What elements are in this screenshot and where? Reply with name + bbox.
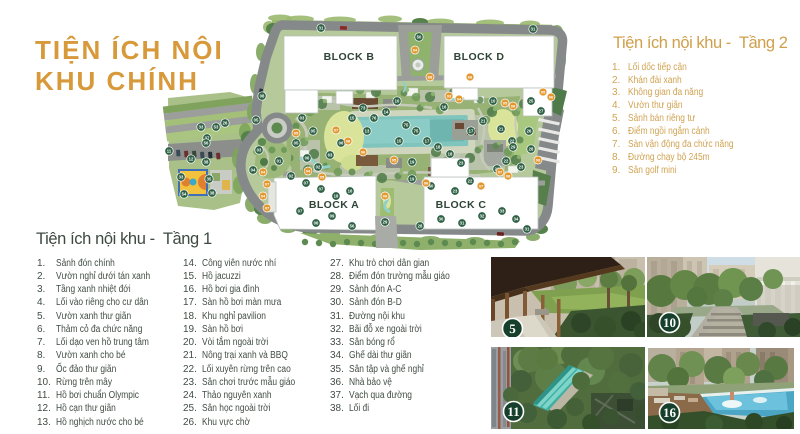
- svg-text:08: 08: [314, 221, 319, 226]
- svg-text:06: 06: [424, 181, 429, 186]
- svg-text:07: 07: [498, 170, 503, 175]
- svg-text:29: 29: [511, 145, 516, 150]
- svg-text:05: 05: [254, 118, 259, 123]
- svg-text:50: 50: [417, 35, 422, 40]
- svg-text:18: 18: [334, 194, 339, 199]
- svg-text:21: 21: [481, 119, 486, 124]
- svg-text:04: 04: [413, 48, 418, 53]
- svg-text:03: 03: [300, 116, 305, 121]
- svg-text:17: 17: [469, 129, 474, 134]
- svg-text:05: 05: [294, 141, 299, 146]
- svg-text:32: 32: [480, 214, 485, 219]
- svg-text:05: 05: [311, 129, 316, 134]
- svg-text:06: 06: [511, 104, 516, 109]
- svg-text:05: 05: [294, 131, 299, 136]
- svg-text:06: 06: [361, 150, 366, 155]
- svg-text:19: 19: [410, 160, 415, 165]
- svg-text:04: 04: [261, 170, 266, 175]
- svg-text:22: 22: [504, 159, 509, 164]
- svg-text:19: 19: [410, 177, 415, 182]
- svg-text:31: 31: [525, 227, 530, 232]
- svg-text:06: 06: [339, 141, 344, 146]
- svg-text:54: 54: [182, 192, 187, 197]
- svg-text:10: 10: [663, 315, 676, 330]
- svg-text:33: 33: [500, 209, 505, 214]
- svg-text:75: 75: [404, 123, 409, 128]
- svg-text:05: 05: [503, 101, 508, 106]
- svg-text:63: 63: [328, 153, 333, 158]
- svg-text:09: 09: [330, 214, 335, 219]
- svg-text:05: 05: [320, 175, 325, 180]
- svg-text:03: 03: [447, 94, 452, 99]
- svg-text:33: 33: [179, 175, 184, 180]
- svg-text:28: 28: [529, 147, 534, 152]
- svg-text:08: 08: [346, 139, 351, 144]
- svg-text:08: 08: [506, 174, 511, 179]
- svg-text:16: 16: [348, 189, 353, 194]
- svg-text:5: 5: [509, 321, 516, 336]
- svg-text:31: 31: [319, 26, 324, 31]
- svg-text:18: 18: [448, 152, 453, 157]
- svg-text:25: 25: [529, 99, 534, 104]
- svg-text:12: 12: [189, 157, 194, 162]
- svg-text:26: 26: [527, 129, 532, 134]
- svg-text:11: 11: [507, 404, 519, 419]
- svg-text:07: 07: [334, 128, 339, 133]
- svg-text:02: 02: [316, 165, 321, 170]
- svg-text:07: 07: [298, 209, 303, 214]
- svg-text:35: 35: [207, 177, 212, 182]
- svg-text:56: 56: [204, 141, 209, 146]
- svg-text:07: 07: [479, 184, 484, 189]
- svg-text:08: 08: [260, 94, 265, 99]
- svg-text:07: 07: [265, 206, 270, 211]
- svg-text:28: 28: [418, 224, 423, 229]
- svg-text:38: 38: [204, 160, 209, 165]
- svg-text:33: 33: [199, 125, 204, 130]
- svg-text:BLOCK D: BLOCK D: [454, 51, 505, 63]
- svg-text:09: 09: [383, 194, 388, 199]
- svg-text:07: 07: [304, 181, 309, 186]
- svg-text:15: 15: [350, 116, 355, 121]
- svg-text:07: 07: [265, 182, 270, 187]
- svg-text:21: 21: [499, 127, 504, 132]
- svg-text:13: 13: [365, 129, 370, 134]
- svg-text:03: 03: [257, 148, 262, 153]
- svg-text:BLOCK B: BLOCK B: [324, 51, 375, 63]
- svg-text:04: 04: [457, 97, 462, 102]
- svg-text:11: 11: [167, 149, 172, 154]
- svg-text:04: 04: [251, 168, 256, 173]
- svg-text:23: 23: [459, 161, 464, 166]
- svg-text:23: 23: [519, 165, 524, 170]
- svg-text:05: 05: [392, 158, 397, 163]
- svg-text:73: 73: [361, 106, 366, 111]
- svg-text:06: 06: [305, 156, 310, 161]
- svg-text:26: 26: [223, 121, 228, 126]
- svg-text:38: 38: [210, 191, 215, 196]
- svg-text:10: 10: [491, 99, 496, 104]
- svg-text:17: 17: [425, 139, 430, 144]
- svg-text:07: 07: [319, 187, 324, 192]
- svg-text:23: 23: [453, 189, 458, 194]
- svg-text:06: 06: [549, 95, 554, 100]
- svg-text:75: 75: [414, 129, 419, 134]
- svg-text:56: 56: [350, 224, 355, 229]
- svg-text:02: 02: [289, 174, 294, 179]
- svg-text:04: 04: [306, 169, 311, 174]
- svg-text:31: 31: [531, 27, 536, 32]
- svg-text:16: 16: [663, 405, 677, 420]
- svg-text:05: 05: [541, 90, 546, 95]
- svg-text:08: 08: [536, 158, 541, 163]
- svg-text:76: 76: [372, 116, 377, 121]
- svg-text:14: 14: [384, 110, 389, 115]
- svg-text:18: 18: [436, 145, 441, 150]
- svg-text:10: 10: [395, 99, 400, 104]
- svg-text:68: 68: [428, 75, 433, 80]
- svg-text:04: 04: [261, 194, 266, 199]
- svg-text:16: 16: [442, 105, 447, 110]
- svg-text:BLOCK A: BLOCK A: [309, 199, 359, 211]
- svg-text:34: 34: [514, 217, 519, 222]
- svg-text:27: 27: [539, 109, 544, 114]
- svg-text:68: 68: [468, 75, 473, 80]
- svg-text:29: 29: [383, 220, 388, 225]
- svg-text:31: 31: [460, 221, 465, 226]
- svg-text:53: 53: [214, 125, 219, 130]
- svg-text:30: 30: [439, 217, 444, 222]
- svg-text:01: 01: [277, 159, 282, 164]
- svg-text:BLOCK C: BLOCK C: [436, 199, 487, 211]
- svg-text:22: 22: [468, 179, 473, 184]
- svg-text:15: 15: [397, 139, 402, 144]
